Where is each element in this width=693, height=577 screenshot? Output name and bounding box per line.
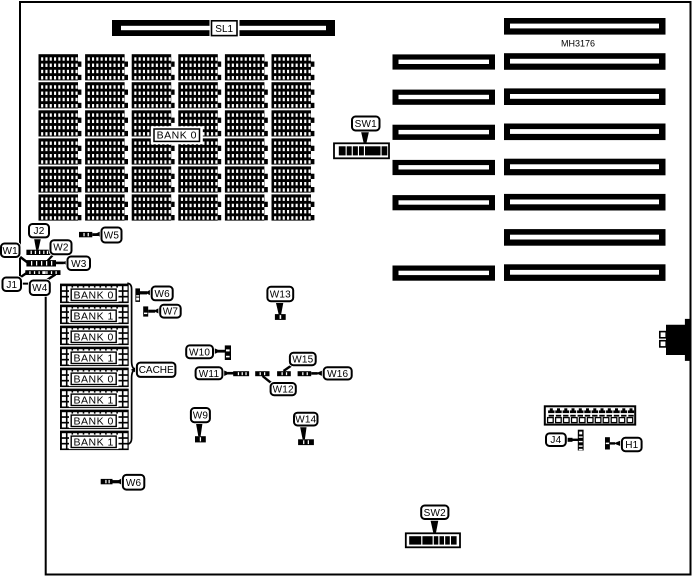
svg-text:BANK 0: BANK 0 — [74, 331, 114, 343]
svg-text:SL1: SL1 — [215, 24, 233, 35]
svg-text:J1: J1 — [6, 280, 17, 291]
svg-text:W5: W5 — [104, 231, 120, 242]
svg-text:W14: W14 — [295, 415, 316, 426]
svg-text:W1: W1 — [2, 246, 18, 257]
svg-text:W7: W7 — [163, 307, 179, 318]
svg-text:W16: W16 — [327, 369, 348, 380]
svg-text:W15: W15 — [292, 355, 313, 366]
svg-text:W4: W4 — [32, 283, 48, 294]
svg-text:BANK 0: BANK 0 — [74, 373, 114, 385]
svg-text:W13: W13 — [270, 290, 291, 301]
svg-text:BANK 0: BANK 0 — [74, 415, 114, 427]
svg-text:W10: W10 — [189, 347, 210, 358]
svg-text:W6: W6 — [126, 478, 142, 489]
svg-text:W9: W9 — [193, 411, 209, 422]
svg-text:SW2: SW2 — [424, 508, 447, 519]
svg-text:SW1: SW1 — [355, 119, 378, 130]
svg-text:BANK 0: BANK 0 — [157, 130, 197, 142]
svg-text:W3: W3 — [71, 259, 87, 270]
svg-text:H1: H1 — [625, 440, 638, 451]
svg-text:W6: W6 — [154, 289, 170, 300]
svg-text:W11: W11 — [199, 369, 220, 380]
svg-text:BANK 1: BANK 1 — [74, 352, 114, 364]
svg-text:CACHE: CACHE — [139, 365, 174, 376]
svg-text:BANK 0: BANK 0 — [74, 289, 114, 301]
svg-text:MH3176: MH3176 — [561, 39, 595, 49]
svg-text:J4: J4 — [550, 435, 561, 446]
svg-text:BANK 1: BANK 1 — [74, 310, 114, 322]
svg-text:BANK 1: BANK 1 — [74, 436, 114, 448]
svg-text:W2: W2 — [53, 243, 69, 254]
svg-text:J2: J2 — [34, 226, 45, 237]
svg-text:W12: W12 — [273, 385, 294, 396]
svg-text:BANK 1: BANK 1 — [74, 394, 114, 406]
